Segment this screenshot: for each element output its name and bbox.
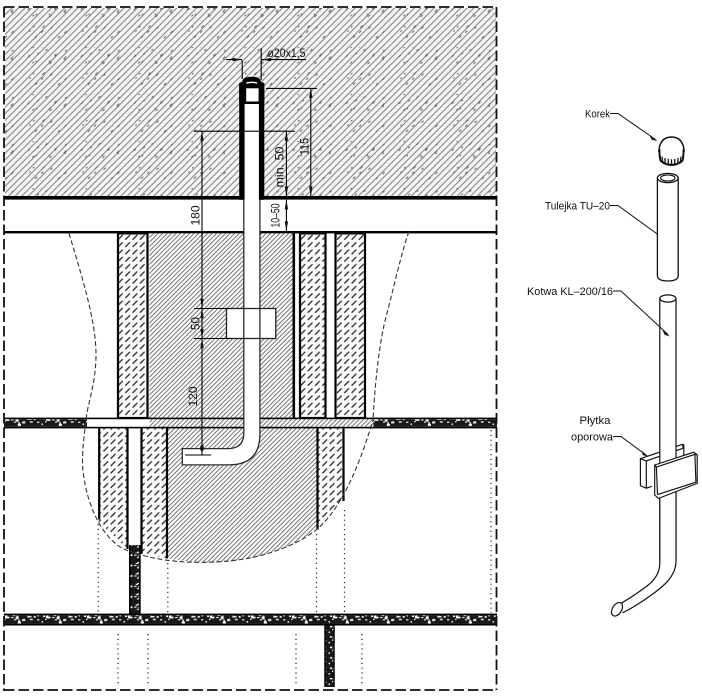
svg-text:oporowa: oporowa <box>571 432 614 444</box>
svg-text:50: 50 <box>189 317 203 330</box>
svg-text:115: 115 <box>298 138 312 155</box>
svg-text:180: 180 <box>189 205 203 225</box>
svg-text:10–50: 10–50 <box>269 203 283 227</box>
svg-text:ø20x1,5: ø20x1,5 <box>268 46 306 60</box>
svg-text:min. 50: min. 50 <box>273 146 287 187</box>
svg-text:Korek: Korek <box>585 109 610 121</box>
svg-text:Płytka: Płytka <box>580 415 612 427</box>
svg-text:Tulejka TU–20: Tulejka TU–20 <box>545 201 610 213</box>
svg-text:120: 120 <box>186 386 200 406</box>
svg-text:Kotwa KL–200/16: Kotwa KL–200/16 <box>527 286 613 298</box>
